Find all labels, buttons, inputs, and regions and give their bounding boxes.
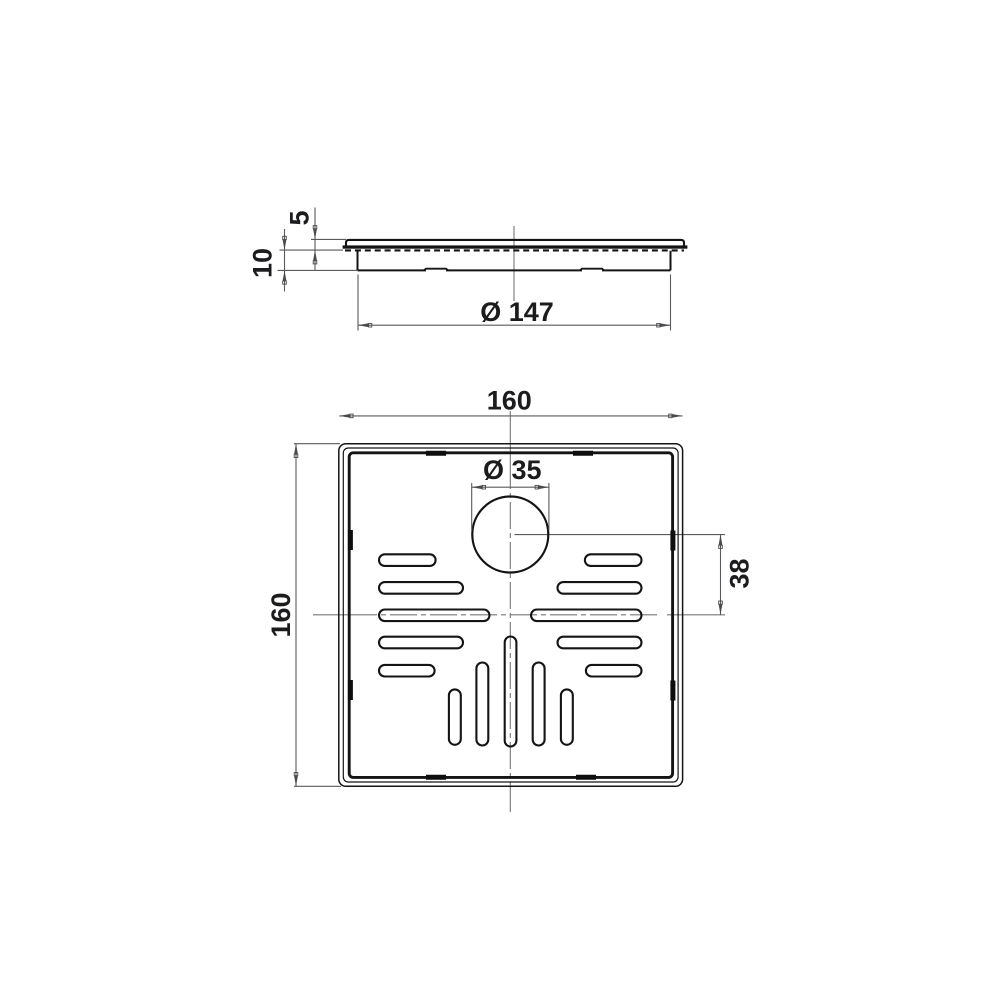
svg-text:38: 38	[724, 558, 754, 588]
svg-text:Ø 35: Ø 35	[483, 455, 542, 485]
svg-text:Ø 147: Ø 147	[480, 297, 554, 327]
svg-text:160: 160	[266, 592, 296, 637]
svg-text:160: 160	[487, 386, 532, 416]
svg-text:5: 5	[285, 210, 315, 225]
svg-text:10: 10	[248, 248, 278, 278]
